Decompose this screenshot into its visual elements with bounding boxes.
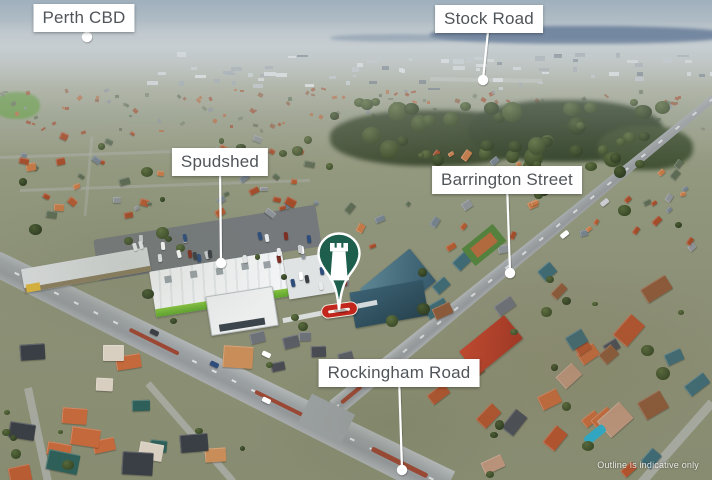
car-on-road xyxy=(149,328,159,336)
car-on-road xyxy=(209,360,219,368)
parked-car xyxy=(192,251,197,260)
callout-perth-cbd: Perth CBD xyxy=(33,4,134,32)
callout-stock-road: Stock Road xyxy=(435,5,543,33)
parked-car xyxy=(306,234,311,242)
car-on-road xyxy=(261,396,271,404)
parked-car xyxy=(161,242,166,250)
parked-car xyxy=(132,243,138,252)
parked-car xyxy=(276,248,281,256)
callout-barrington-street: Barrington Street xyxy=(432,166,582,194)
parked-car xyxy=(138,240,144,249)
parked-car xyxy=(242,255,248,264)
car-on-road xyxy=(261,350,271,358)
parked-car xyxy=(304,275,309,284)
rook-tower-icon xyxy=(329,243,349,280)
parked-car xyxy=(265,234,270,243)
parked-car xyxy=(183,233,188,242)
parked-car xyxy=(291,278,297,287)
parked-car xyxy=(283,232,288,240)
car-on-road xyxy=(560,230,570,239)
parked-car xyxy=(299,272,304,280)
disclaimer-text: Outline is indicative only xyxy=(597,460,699,470)
parked-car xyxy=(298,245,303,253)
parked-car xyxy=(257,232,263,241)
parked-car xyxy=(158,254,163,262)
car-on-road xyxy=(600,198,610,207)
callout-spudshed: Spudshed xyxy=(172,148,268,176)
aerial-photo-map: Perth CBD Stock Road Spudshed Barrington… xyxy=(0,0,712,480)
property-pin xyxy=(316,231,362,315)
callout-rockingham-road: Rockingham Road xyxy=(319,359,480,387)
pin-shadow xyxy=(334,309,348,313)
parked-car xyxy=(176,250,182,259)
parked-car xyxy=(208,250,213,258)
